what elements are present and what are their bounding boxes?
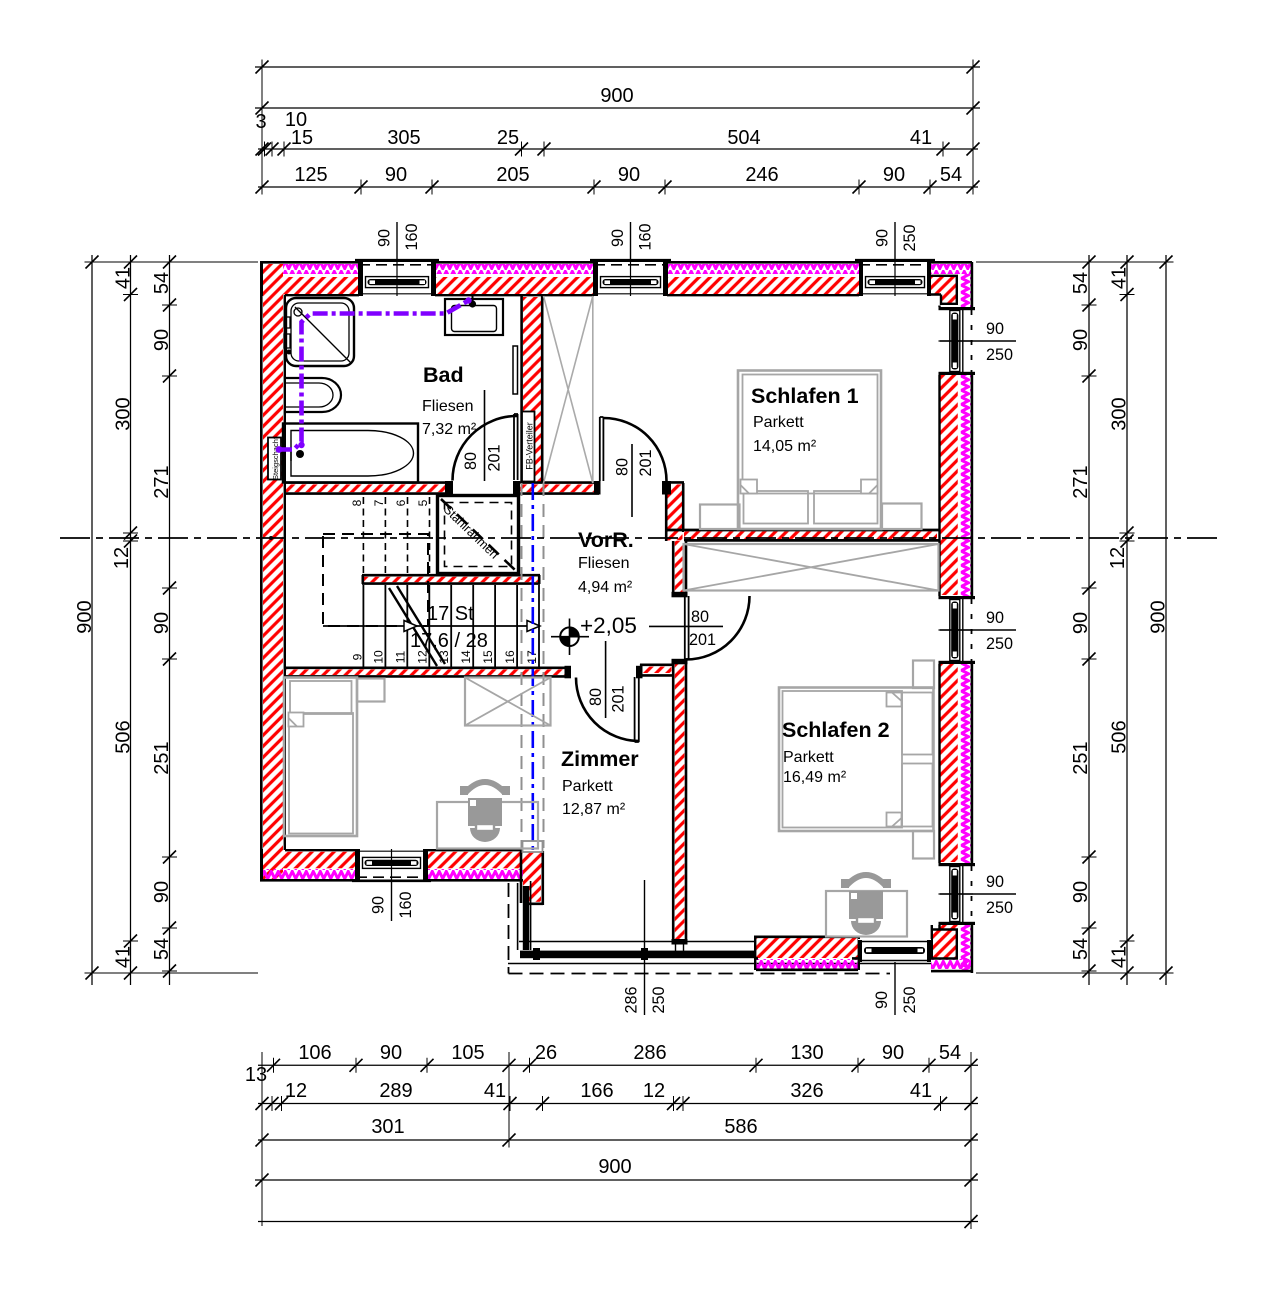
svg-text:Parkett: Parkett xyxy=(753,414,804,431)
svg-text:90: 90 xyxy=(370,896,388,914)
svg-text:41: 41 xyxy=(1109,267,1131,289)
svg-text:504: 504 xyxy=(727,127,760,149)
svg-text:Schlafen 2: Schlafen 2 xyxy=(782,718,890,742)
svg-text:15: 15 xyxy=(291,127,313,149)
svg-text:286: 286 xyxy=(623,986,641,1013)
svg-text:246: 246 xyxy=(745,164,778,186)
svg-text:16: 16 xyxy=(503,650,517,664)
svg-text:Fliesen: Fliesen xyxy=(422,398,474,415)
svg-text:90: 90 xyxy=(151,881,173,903)
svg-text:80: 80 xyxy=(614,458,632,476)
svg-text:286: 286 xyxy=(633,1042,666,1064)
svg-text:251: 251 xyxy=(1070,741,1092,774)
svg-text:160: 160 xyxy=(403,223,421,250)
svg-text:90: 90 xyxy=(609,229,627,247)
svg-text:FB-Verteiler: FB-Verteiler xyxy=(525,422,535,470)
svg-text:205: 205 xyxy=(496,164,529,186)
svg-text:54: 54 xyxy=(1070,938,1092,960)
svg-text:90: 90 xyxy=(151,329,173,351)
svg-text:41: 41 xyxy=(484,1080,506,1102)
svg-text:Schlafen 1: Schlafen 1 xyxy=(751,384,859,408)
svg-text:160: 160 xyxy=(637,223,655,250)
svg-text:6: 6 xyxy=(394,499,408,506)
svg-text:90: 90 xyxy=(1070,612,1092,634)
svg-text:25: 25 xyxy=(497,127,519,149)
svg-text:90: 90 xyxy=(986,320,1004,338)
svg-text:300: 300 xyxy=(113,397,135,430)
svg-text:16,49 m²: 16,49 m² xyxy=(783,769,847,786)
svg-text:90: 90 xyxy=(883,164,905,186)
svg-text:80: 80 xyxy=(462,452,480,470)
svg-text:90: 90 xyxy=(385,164,407,186)
svg-text:54: 54 xyxy=(1070,272,1092,294)
svg-text:Steigschacht: Steigschacht xyxy=(271,436,280,480)
svg-text:7: 7 xyxy=(372,499,386,506)
svg-text:54: 54 xyxy=(940,164,962,186)
svg-text:10: 10 xyxy=(371,650,385,664)
svg-text:9: 9 xyxy=(350,653,364,660)
svg-text:Fliesen: Fliesen xyxy=(578,555,630,572)
svg-text:201: 201 xyxy=(637,449,655,476)
svg-text:250: 250 xyxy=(986,346,1013,364)
svg-text:12: 12 xyxy=(643,1080,665,1102)
svg-text:250: 250 xyxy=(901,986,919,1013)
svg-text:Parkett: Parkett xyxy=(783,749,834,766)
svg-text:12: 12 xyxy=(111,547,133,569)
svg-text:41: 41 xyxy=(113,946,135,968)
svg-text:90: 90 xyxy=(986,609,1004,627)
svg-text:900: 900 xyxy=(1148,600,1170,633)
svg-text:251: 251 xyxy=(151,741,173,774)
svg-text:90: 90 xyxy=(618,164,640,186)
svg-text:301: 301 xyxy=(371,1116,404,1138)
svg-text:54: 54 xyxy=(939,1042,961,1064)
svg-text:90: 90 xyxy=(151,612,173,634)
svg-text:15: 15 xyxy=(481,650,495,664)
svg-text:80: 80 xyxy=(691,608,709,626)
svg-text:90: 90 xyxy=(1070,329,1092,351)
svg-text:8: 8 xyxy=(350,499,364,506)
svg-text:271: 271 xyxy=(151,465,173,498)
svg-text:12,87 m²: 12,87 m² xyxy=(562,801,626,818)
svg-text:41: 41 xyxy=(910,1080,932,1102)
svg-text:900: 900 xyxy=(598,1156,631,1178)
svg-text:506: 506 xyxy=(1109,720,1131,753)
svg-text:900: 900 xyxy=(600,85,633,107)
svg-text:80: 80 xyxy=(587,688,605,706)
svg-text:271: 271 xyxy=(1070,465,1092,498)
svg-text:4,94 m²: 4,94 m² xyxy=(578,579,633,596)
svg-text:5: 5 xyxy=(416,499,430,506)
svg-text:105: 105 xyxy=(451,1042,484,1064)
svg-text:201: 201 xyxy=(689,631,716,649)
svg-text:166: 166 xyxy=(580,1080,613,1102)
svg-text:250: 250 xyxy=(650,986,668,1013)
svg-text:201: 201 xyxy=(486,444,504,471)
svg-text:305: 305 xyxy=(387,127,420,149)
svg-text:54: 54 xyxy=(151,272,173,294)
svg-text:900: 900 xyxy=(74,600,96,633)
svg-text:26: 26 xyxy=(535,1042,557,1064)
svg-text:106: 106 xyxy=(298,1042,331,1064)
svg-text:Bad: Bad xyxy=(423,363,464,387)
svg-text:90: 90 xyxy=(874,229,892,247)
svg-text:586: 586 xyxy=(724,1116,757,1138)
svg-text:54: 54 xyxy=(151,938,173,960)
svg-text:17,6 / 28: 17,6 / 28 xyxy=(410,630,488,652)
svg-text:130: 130 xyxy=(790,1042,823,1064)
svg-text:11: 11 xyxy=(393,650,407,663)
svg-text:201: 201 xyxy=(610,685,628,712)
svg-text:13: 13 xyxy=(245,1064,267,1086)
svg-text:14,05 m²: 14,05 m² xyxy=(753,438,817,455)
svg-text:41: 41 xyxy=(113,267,135,289)
svg-text:300: 300 xyxy=(1109,397,1131,430)
svg-text:90: 90 xyxy=(376,229,394,247)
svg-text:506: 506 xyxy=(113,720,135,753)
svg-text:125: 125 xyxy=(294,164,327,186)
svg-text:90: 90 xyxy=(882,1042,904,1064)
svg-text:160: 160 xyxy=(397,891,415,918)
svg-text:41: 41 xyxy=(1109,946,1131,968)
svg-text:250: 250 xyxy=(986,635,1013,653)
svg-text:+2,05: +2,05 xyxy=(580,613,637,638)
svg-text:90: 90 xyxy=(873,991,891,1009)
svg-text:14: 14 xyxy=(459,650,473,664)
svg-text:12: 12 xyxy=(285,1080,307,1102)
svg-text:326: 326 xyxy=(790,1080,823,1102)
svg-text:17 St: 17 St xyxy=(427,603,474,625)
svg-text:3: 3 xyxy=(255,111,266,133)
svg-text:12: 12 xyxy=(1107,547,1129,569)
svg-text:90: 90 xyxy=(1070,881,1092,903)
svg-text:90: 90 xyxy=(986,873,1004,891)
svg-text:289: 289 xyxy=(379,1080,412,1102)
svg-text:90: 90 xyxy=(380,1042,402,1064)
svg-text:VorR.: VorR. xyxy=(578,528,634,552)
svg-text:Parkett: Parkett xyxy=(562,778,613,795)
svg-text:Zimmer: Zimmer xyxy=(561,747,639,771)
svg-text:250: 250 xyxy=(901,224,919,251)
svg-text:7,32 m²: 7,32 m² xyxy=(422,421,477,438)
svg-text:41: 41 xyxy=(910,127,932,149)
svg-text:250: 250 xyxy=(986,899,1013,917)
